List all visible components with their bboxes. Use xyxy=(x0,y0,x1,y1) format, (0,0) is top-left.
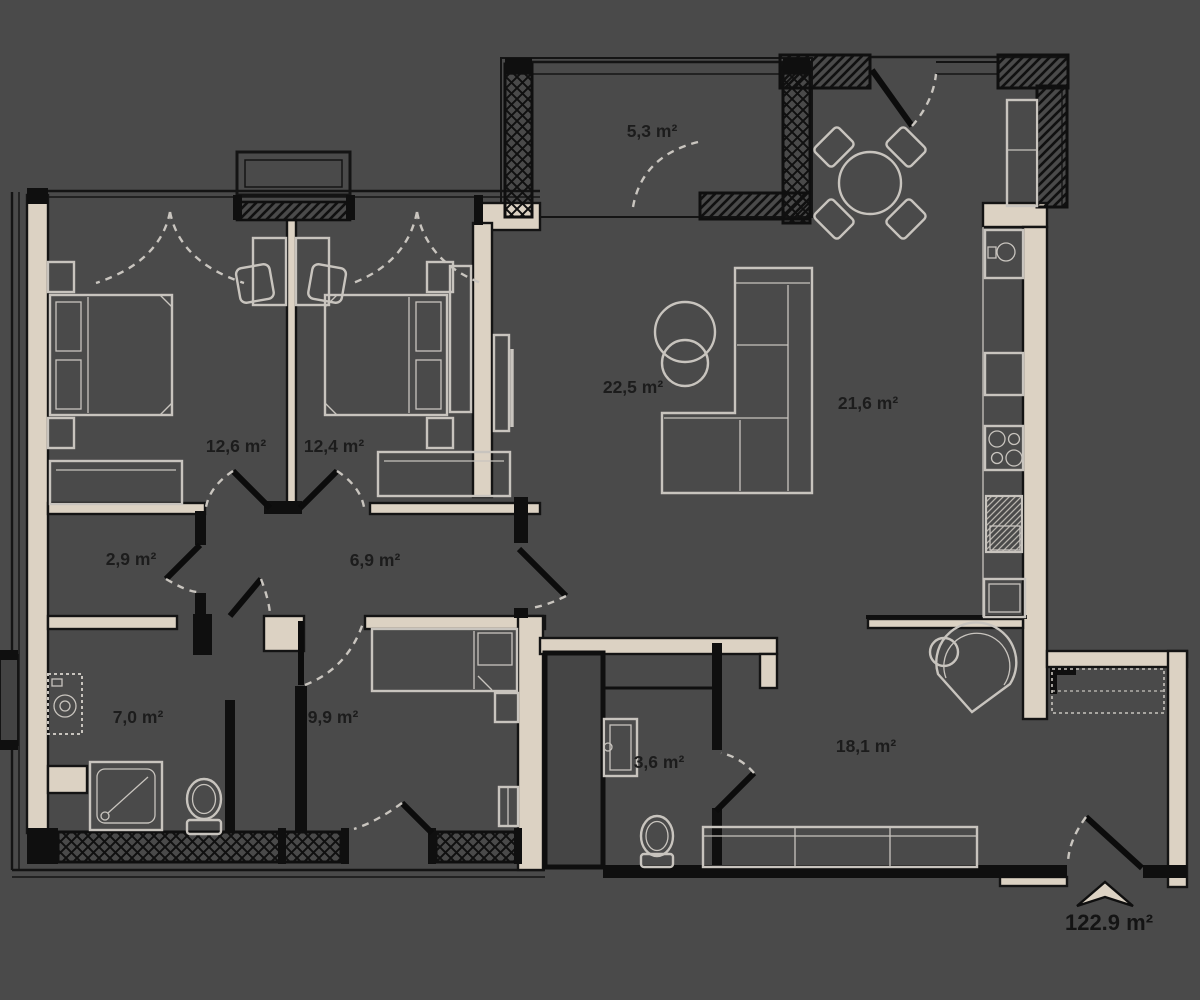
wall-left-exterior xyxy=(27,195,48,833)
room-label-hallway: 6,9 m² xyxy=(350,550,401,570)
exterior-duct xyxy=(0,655,18,745)
wall-right-exterior xyxy=(1037,86,1067,207)
room-label-living: 22,5 m² xyxy=(603,377,663,397)
room-label-kitchen: 21,6 m² xyxy=(838,393,898,413)
wall-bottom-exterior xyxy=(58,832,282,862)
wall-bedroom-divider xyxy=(287,220,296,508)
room-label-entrance: 18,1 m² xyxy=(836,736,896,756)
room-label-bedroom1: 12,6 m² xyxy=(206,436,266,456)
shaft xyxy=(545,653,603,867)
room-label-bedroom2: 12,4 m² xyxy=(304,436,364,456)
wall-kitchen-right xyxy=(1023,227,1047,719)
room-label-wc: 3,6 m² xyxy=(634,752,685,772)
room-label-balcony: 5,3 m² xyxy=(627,121,678,141)
balcony-wall-left xyxy=(505,64,532,217)
fridge-icon xyxy=(986,496,1022,552)
room-label-bathroom: 7,0 m² xyxy=(113,707,164,727)
room-label-kids-room: 9,9 m² xyxy=(308,707,359,727)
room-label-closet: 2,9 m² xyxy=(106,549,157,569)
floor-plan: 5,3 m² 22,5 m² 21,6 m² 12,6 m² 12,4 m² 2… xyxy=(0,0,1200,1000)
total-area-label: 122.9 m² xyxy=(1065,910,1153,935)
